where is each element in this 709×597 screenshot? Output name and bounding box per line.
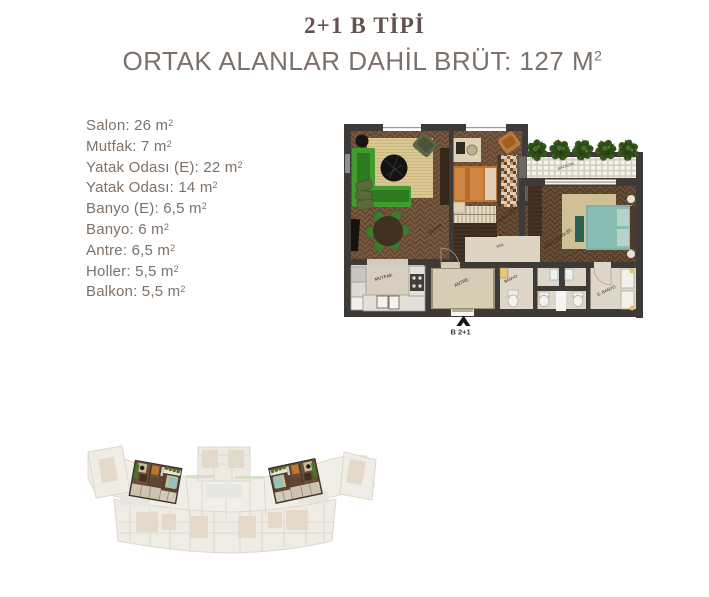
svg-text:B 2+1: B 2+1 xyxy=(451,328,471,337)
